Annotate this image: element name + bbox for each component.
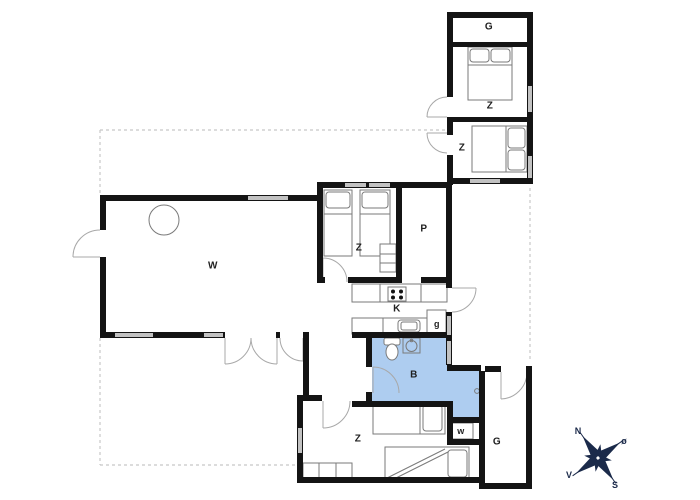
- single-bed: [472, 126, 527, 172]
- room-label-closet: w: [457, 426, 465, 436]
- room-label-garage: G: [493, 437, 501, 448]
- twin-beds: [324, 190, 396, 272]
- south-bed-2: [385, 447, 469, 480]
- floor-plan-drawing: [0, 0, 700, 500]
- room-label-living-room: W: [208, 261, 218, 272]
- compass-label-west: V: [566, 470, 572, 480]
- room-label-annex-storage: G: [485, 22, 493, 33]
- floor-plan: G Z Z Z P W K g B Z w G N ø V S: [0, 0, 700, 500]
- room-label-south-bedroom: Z: [355, 434, 362, 445]
- room-label-pantry: g: [434, 319, 440, 329]
- room-label-kitchen: K: [393, 304, 401, 315]
- compass-label-east: ø: [621, 436, 627, 446]
- compass-rose: [555, 415, 641, 500]
- wardrobe: [380, 244, 396, 272]
- kitchen-counter-stove: [352, 284, 447, 302]
- room-label-annex-bedroom-2: Z: [459, 143, 466, 154]
- room-label-twin-bedroom: Z: [356, 243, 363, 254]
- dresser: [303, 463, 352, 479]
- round-table: [149, 205, 179, 235]
- room-label-annex-bedroom-1: Z: [487, 101, 494, 112]
- double-bed: [468, 47, 512, 100]
- compass-label-north: N: [575, 426, 582, 436]
- room-label-bathroom: B: [410, 370, 418, 381]
- compass-label-south: S: [612, 480, 618, 490]
- room-label-utility-room: P: [420, 224, 427, 235]
- kitchen-counter-sink: [352, 318, 427, 334]
